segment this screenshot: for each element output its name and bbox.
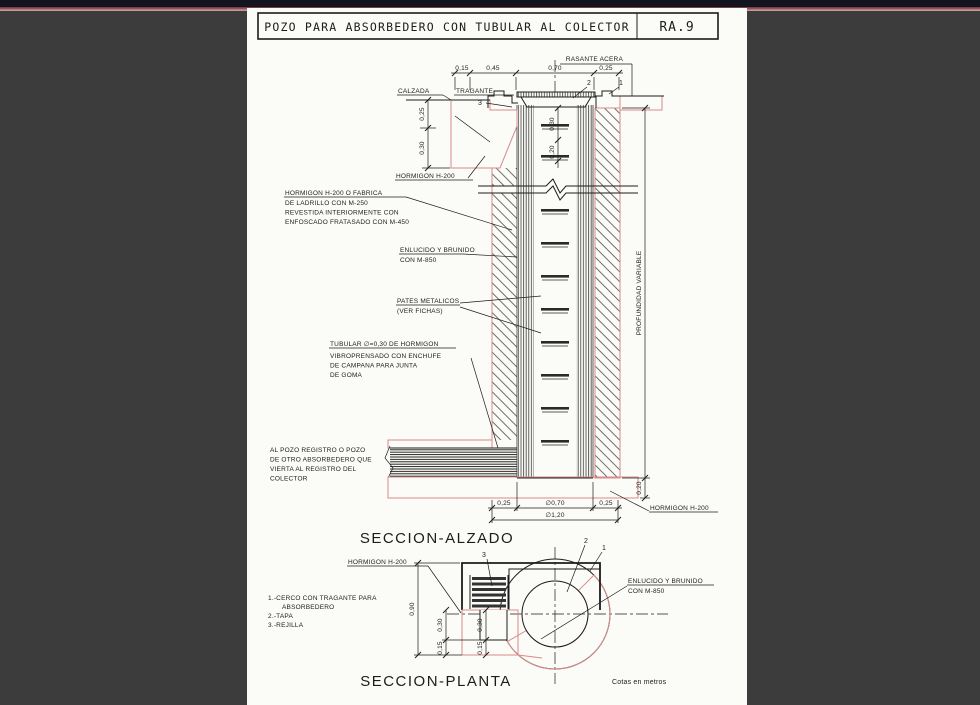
dim-top-045: 0,45 bbox=[486, 65, 500, 72]
shaft-right-wall bbox=[595, 108, 620, 478]
rejilla-grate bbox=[470, 575, 508, 609]
plan-enlucido-note: ENLUCIDO Y BRUNIDO CON M-850 bbox=[541, 578, 714, 639]
hormigon-curb-label: HORMIGON H-200 bbox=[396, 173, 455, 180]
hormigon-base-note: HORMIGON H-200 bbox=[610, 491, 718, 512]
top-dimension-chain: 0,15 0,45 0,70 0,25 bbox=[451, 65, 623, 90]
left-dimension-chain: 0,25 0,30 bbox=[419, 97, 450, 171]
shaft-rungs bbox=[541, 124, 569, 445]
legend-line3: 2.-TAPA bbox=[268, 613, 293, 620]
wall-note-line3: REVESTIDA INTERIORMENTE CON bbox=[285, 210, 399, 217]
plan-mark-3: 3 bbox=[482, 552, 486, 559]
dim-top-015: 0,15 bbox=[455, 65, 469, 72]
dim-bottom-070: ∅0,70 bbox=[545, 500, 564, 507]
tubular-line2: VIBROPRENSADO CON ENCHUFE bbox=[330, 353, 442, 360]
base-slab bbox=[388, 477, 638, 498]
wall-note-line1: HORMIGON H-200 O FABRICA bbox=[285, 190, 383, 197]
bottom-dimension-chain: 0,25 ∅0,70 0,25 ∅1,20 bbox=[488, 482, 622, 523]
application-window: POZO PARA ABSORBEDERO CON TUBULAR AL COL… bbox=[0, 0, 980, 705]
wall-note-line4: ENFOSCADO FRATASADO CON M-450 bbox=[285, 219, 409, 226]
colector-line3: VIERTA AL REGISTRO DEL bbox=[270, 466, 356, 473]
plan-dimensions: 0,90 0,30 0,15 0,30 0,15 bbox=[409, 560, 489, 658]
dim-top-025: 0,25 bbox=[599, 65, 613, 72]
plan-section: 0,90 0,30 0,15 0,30 0,15 3 2 1 bbox=[268, 538, 714, 690]
dim-left-030: 0,30 bbox=[419, 141, 426, 155]
rung-spacing-dimension: 0,30 0,20 bbox=[549, 105, 561, 168]
dim-top-070: 0,70 bbox=[548, 65, 562, 72]
tubular-note: TUBULAR ∅=0,30 DE HORMIGON VIBROPRENSADO… bbox=[329, 341, 498, 448]
units-note: Cotas en metros bbox=[612, 679, 667, 686]
dim-bottom-025r: 0,25 bbox=[599, 500, 613, 507]
dim-plan-030a: 0,30 bbox=[437, 618, 444, 632]
tubular-line3: DE CAMPANA PARA JUNTA bbox=[330, 363, 418, 370]
plan-mark-1: 1 bbox=[602, 545, 606, 552]
title-block: POZO PARA ABSORBEDERO CON TUBULAR AL COL… bbox=[258, 13, 718, 39]
plan-legend: 1.-CERCO CON TRAGANTE PARA ABSORBEDERO 2… bbox=[268, 595, 377, 629]
profundidad-dimension: PROFUNDIDAD VARIABLE 0,20 bbox=[622, 105, 650, 501]
dim-bottom-025l: 0,25 bbox=[497, 500, 511, 507]
legend-line4: 3.-REJILLA bbox=[268, 622, 304, 629]
sheet-code: RA.9 bbox=[659, 20, 694, 35]
tubular-line4: DE GOMA bbox=[330, 372, 363, 379]
mark-3: 3 bbox=[478, 100, 482, 107]
wall-note-line2: DE LADRILLO CON M-250 bbox=[285, 200, 368, 207]
dim-plan-015b: 0,15 bbox=[477, 641, 484, 655]
colector-line2: DE OTRO ABSORBEDERO QUE bbox=[270, 457, 372, 464]
plan-mark-2: 2 bbox=[584, 538, 588, 545]
mark-1: 1 bbox=[619, 80, 623, 87]
rasante-acera-reference: RASANTE ACERA bbox=[560, 56, 632, 96]
elevation-section: 0,30 0,20 bbox=[270, 56, 718, 547]
tubular-line1: TUBULAR ∅=0,30 DE HORMIGON bbox=[330, 341, 439, 348]
colector-line1: AL POZO REGISTRO O POZO bbox=[270, 447, 365, 454]
plan-section-title: SECCION-PLANTA bbox=[360, 673, 512, 690]
elevation-section-title: SECCION-ALZADO bbox=[360, 530, 514, 547]
dim-plan-030b: 0,30 bbox=[477, 618, 484, 632]
cerco-right-profile bbox=[596, 91, 620, 108]
calzada-label: CALZADA bbox=[398, 88, 430, 95]
tragante-label: TRAGANTE bbox=[456, 88, 493, 95]
colector-line4: COLECTOR bbox=[270, 476, 308, 483]
dim-plan-090: 0,90 bbox=[409, 602, 416, 616]
drawing-canvas: POZO PARA ABSORBEDERO CON TUBULAR AL COL… bbox=[0, 0, 980, 705]
enlucido-line1: ENLUCIDO Y BRUNIDO bbox=[400, 247, 475, 254]
mark-2: 2 bbox=[587, 80, 591, 87]
dim-total-120: ∅1,20 bbox=[545, 512, 564, 519]
sheet-title: POZO PARA ABSORBEDERO CON TUBULAR AL COL… bbox=[264, 20, 630, 34]
dim-plan-015a: 0,15 bbox=[437, 641, 444, 655]
plan-concrete-block bbox=[462, 610, 542, 658]
dim-rung-030: 0,30 bbox=[549, 117, 556, 131]
shaft-left-wall bbox=[492, 168, 517, 440]
cerco-box bbox=[462, 563, 600, 610]
plan-hormigon-label: HORMIGON H-200 bbox=[348, 559, 407, 566]
wall-material-note: HORMIGON H-200 O FABRICA DE LADRILLO CON… bbox=[284, 190, 512, 230]
profundidad-label: PROFUNDIDAD VARIABLE bbox=[636, 250, 643, 335]
colector-note: AL POZO REGISTRO O POZO DE OTRO ABSORBED… bbox=[270, 447, 372, 483]
dim-base-020: 0,20 bbox=[636, 481, 643, 495]
plan-hormigon-note: HORMIGON H-200 bbox=[347, 559, 461, 613]
pates-line1: PATES METALICOS bbox=[397, 298, 460, 305]
plan-enlucido-line2: CON M-850 bbox=[628, 588, 665, 595]
enlucido-line2: CON M-850 bbox=[400, 257, 437, 264]
pates-line2: (VER FICHAS) bbox=[397, 308, 443, 315]
legend-line1: 1.-CERCO CON TRAGANTE PARA bbox=[268, 595, 377, 602]
cover-top-plate bbox=[517, 92, 595, 97]
shaft-ring-lining bbox=[517, 105, 593, 478]
rasante-acera-label: RASANTE ACERA bbox=[566, 56, 624, 63]
hormigon-base-label: HORMIGON H-200 bbox=[650, 505, 709, 512]
dim-rung-020: 0,20 bbox=[549, 145, 556, 159]
plan-enlucido-line1: ENLUCIDO Y BRUNIDO bbox=[628, 578, 703, 585]
legend-line2: ABSORBEDERO bbox=[282, 604, 334, 611]
dim-left-025: 0,25 bbox=[419, 107, 426, 121]
